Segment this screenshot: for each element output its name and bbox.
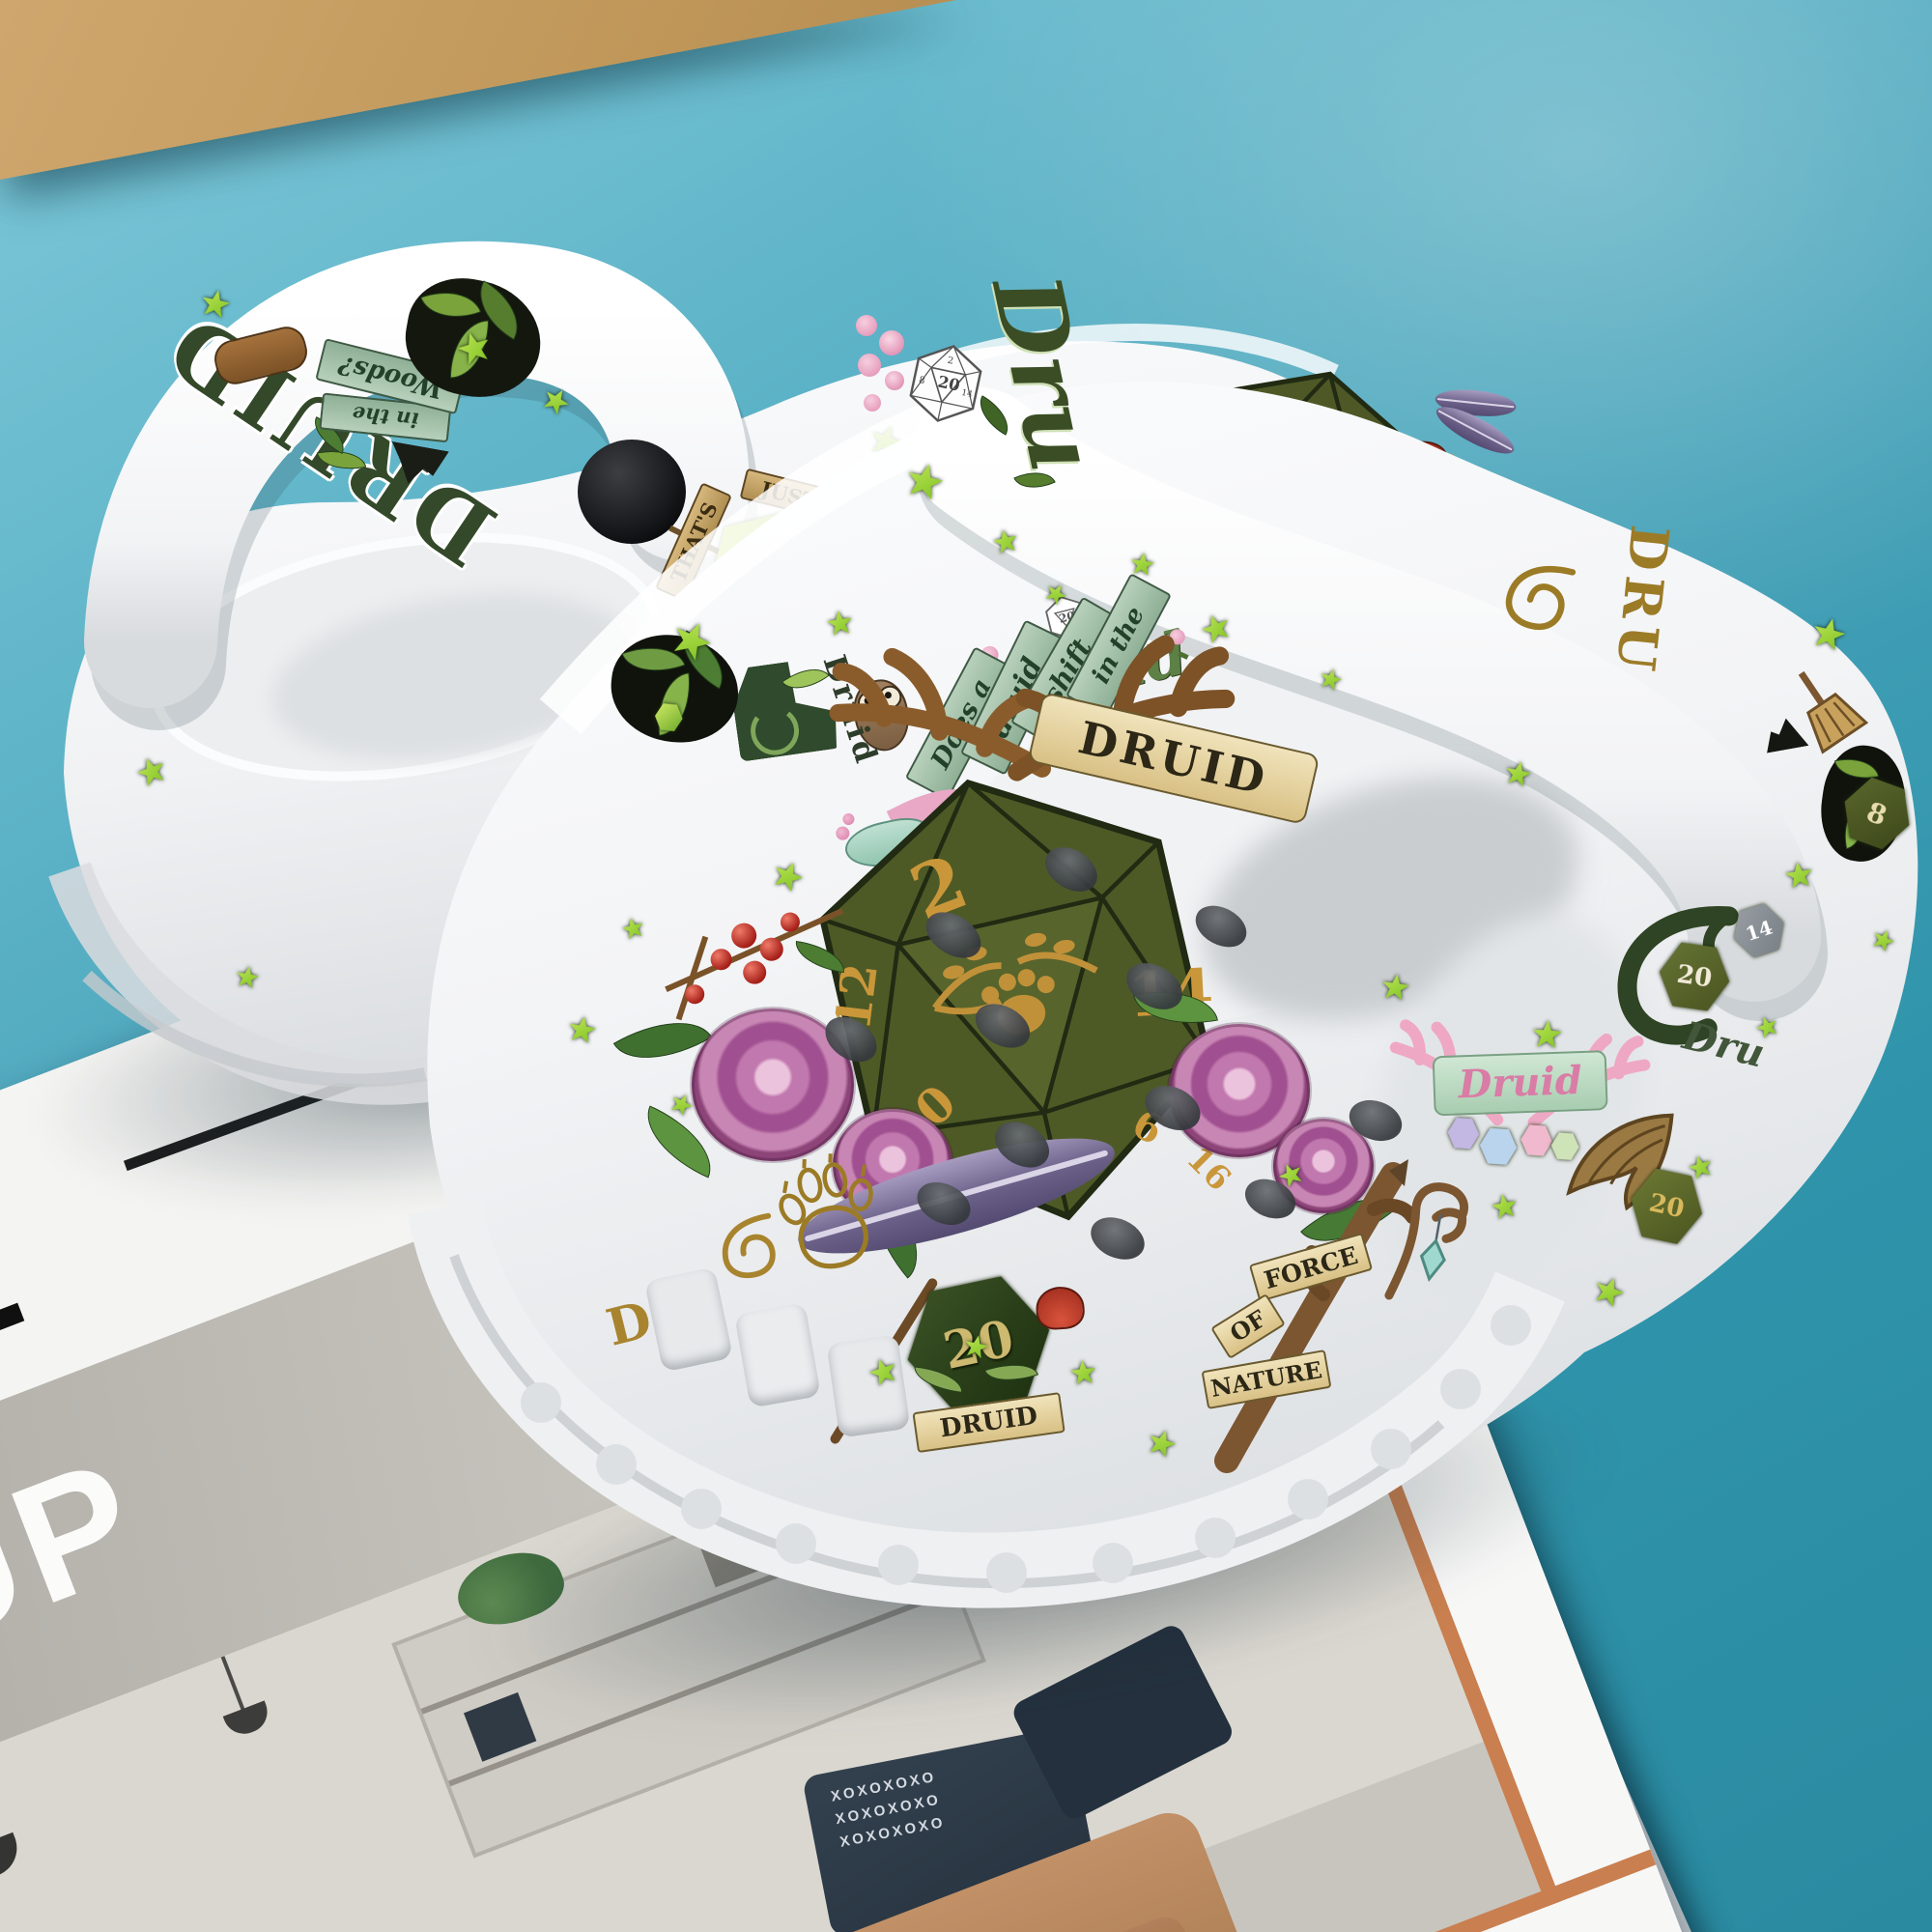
berry-twig [676, 936, 709, 1020]
berry-leaf [792, 941, 847, 973]
lineart-d20: 20 2 8 14 [898, 336, 992, 430]
star-icon [1379, 972, 1411, 1004]
blossom [879, 330, 904, 355]
pastel-die [1519, 1122, 1553, 1157]
blossom [885, 371, 904, 390]
plant-mask-emblem [605, 623, 745, 761]
pastel-die [1478, 1125, 1520, 1167]
blossom [858, 354, 881, 377]
wing-die-emblem: 20 [1555, 1101, 1735, 1272]
claw-staff-icon [1370, 1172, 1496, 1314]
side-vent [827, 1334, 911, 1437]
wing-d20-number: 20 [1646, 1188, 1687, 1224]
star-icon [1069, 1359, 1098, 1388]
scene: E KUP XOXOXOXO XOXOXOXO [0, 0, 1932, 1932]
pink-druid-banner: Druid [1433, 1050, 1608, 1116]
star-icon [1502, 758, 1533, 789]
star-icon [962, 1333, 991, 1362]
star-icon [991, 527, 1021, 557]
blossom [856, 315, 877, 336]
snake-d20-number: 20 [1675, 960, 1714, 994]
star-icon [1783, 860, 1815, 892]
force-staff-icon [1188, 1159, 1410, 1478]
nat20-banner-text: DRUID [938, 1404, 1038, 1442]
berry [742, 959, 767, 984]
edge-die-number: 8 [1862, 795, 1891, 832]
pastel-die [1446, 1116, 1481, 1151]
star-icon [1531, 1019, 1563, 1051]
snake-d20: 20 [1653, 937, 1735, 1016]
star-icon [1128, 551, 1155, 578]
berry [730, 922, 758, 950]
mask-mini-die [653, 701, 685, 733]
pink-druid-banner-text: Druid [1458, 1062, 1582, 1104]
gray-die-number: 14 [1743, 916, 1776, 946]
star-icon [825, 609, 854, 638]
star-icon [566, 1014, 599, 1047]
star-icon [1490, 1192, 1520, 1222]
blossom [864, 394, 881, 412]
